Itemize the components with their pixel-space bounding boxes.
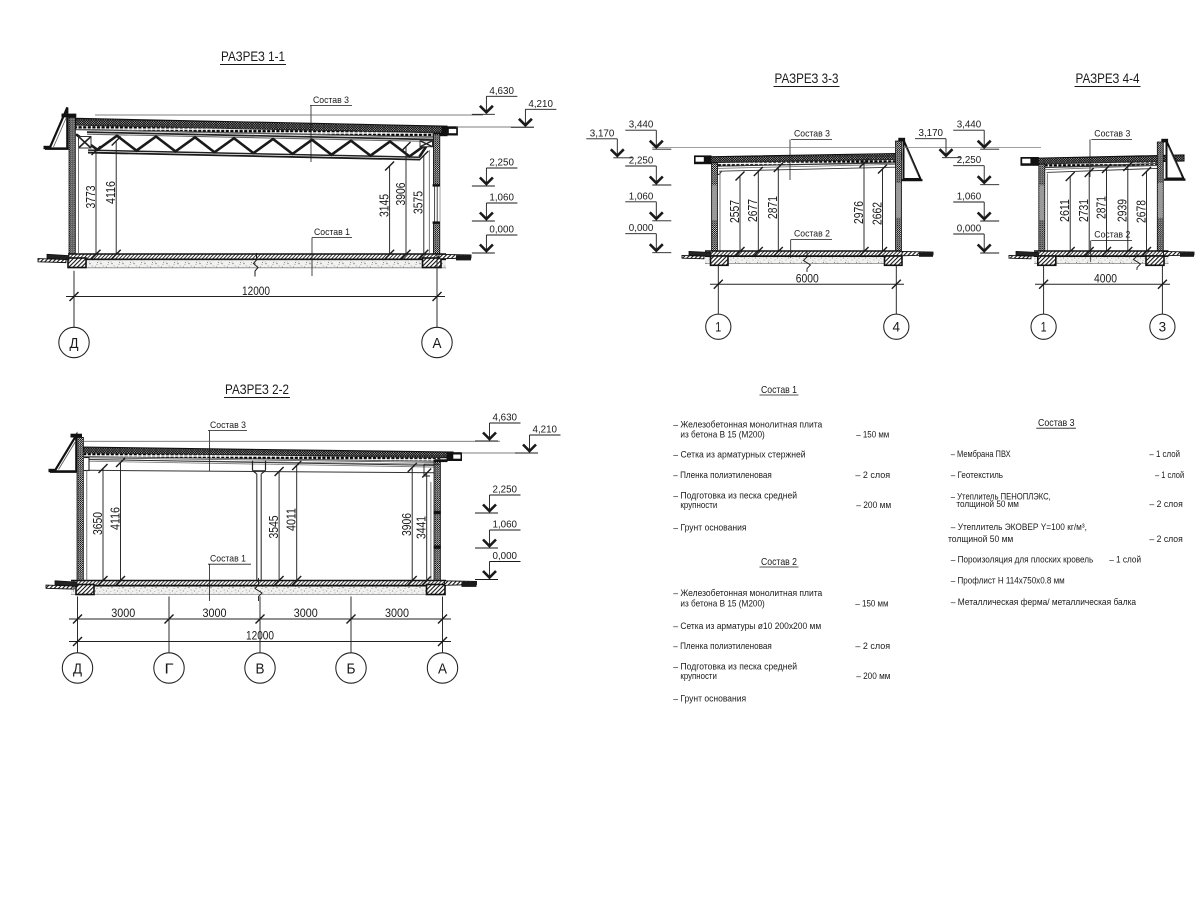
svg-text:3773: 3773 [84,185,98,208]
svg-text:Состав 2: Состав 2 [761,556,797,568]
svg-text:3000: 3000 [294,606,318,620]
svg-text:3,170: 3,170 [590,128,615,139]
svg-text:РАЗРЕЗ 1-1: РАЗРЕЗ 1-1 [221,48,285,64]
svg-text:– Сетка из арматуры ø10 200х20: – Сетка из арматуры ø10 200х200 мм [673,621,821,631]
svg-text:12000: 12000 [242,284,270,298]
svg-text:4,630: 4,630 [493,413,518,424]
svg-text:2,250: 2,250 [493,485,518,496]
svg-text:1: 1 [1041,319,1047,335]
svg-text:из бетона В 15 (М200): из бетона В 15 (М200) [680,598,764,608]
svg-text:– 200 мм: – 200 мм [856,671,890,681]
svg-text:Г: Г [165,660,174,677]
svg-text:Состав 1: Состав 1 [210,554,246,565]
svg-text:4011: 4011 [285,508,299,531]
svg-text:– Грунт основания: – Грунт основания [673,523,746,533]
svg-text:толщиной 50 мм: толщиной 50 мм [948,534,1013,544]
svg-text:из бетона В 15 (М200): из бетона В 15 (М200) [680,429,764,439]
svg-text:3000: 3000 [111,606,135,620]
svg-text:12000: 12000 [246,628,274,642]
svg-text:Состав 3: Состав 3 [1038,417,1075,429]
svg-text:– 2 слоя: – 2 слоя [1149,499,1183,509]
svg-text:– Утеплитель ЭКОВЕР Y=100 кг/м: – Утеплитель ЭКОВЕР Y=100 кг/м³, [951,522,1087,532]
svg-text:3545: 3545 [267,515,281,538]
svg-text:4000: 4000 [1094,271,1117,285]
svg-text:– 1 слой: – 1 слой [1149,449,1180,459]
svg-text:– Профлист Н 114х750х0.8 мм: – Профлист Н 114х750х0.8 мм [951,575,1065,585]
svg-text:2557: 2557 [728,200,742,223]
svg-text:Состав 1: Состав 1 [314,227,350,238]
svg-text:– Пленка полиэтиленовая: – Пленка полиэтиленовая [673,641,772,651]
svg-text:– Геотекстиль: – Геотекстиль [951,470,1003,480]
svg-text:Состав 2: Состав 2 [1094,230,1130,241]
svg-text:Состав 3: Состав 3 [210,420,246,431]
svg-text:– Сетка из арматурных стержней: – Сетка из арматурных стержней [673,450,805,460]
svg-text:А: А [433,335,442,352]
svg-text:2,250: 2,250 [957,155,982,166]
svg-text:2611: 2611 [1058,199,1072,222]
svg-text:3906: 3906 [400,513,414,536]
svg-text:– 1 слой: – 1 слой [1155,470,1184,480]
svg-text:1,060: 1,060 [489,193,514,204]
svg-text:РАЗРЕЗ 3-3: РАЗРЕЗ 3-3 [775,70,839,86]
svg-text:Состав 3: Состав 3 [1094,129,1130,140]
svg-text:толщиной 50 мм: толщиной 50 мм [956,499,1019,509]
svg-text:– 200 мм: – 200 мм [856,500,891,510]
svg-text:3,440: 3,440 [957,120,982,131]
svg-text:Состав 2: Состав 2 [794,229,830,240]
svg-text:– Железобетонная монолитная п: – Железобетонная монолитная плита [673,588,822,598]
svg-text:2871: 2871 [766,196,780,219]
svg-text:– 150 мм: – 150 мм [856,429,889,439]
svg-text:2939: 2939 [1116,199,1130,222]
svg-text:Состав 3: Состав 3 [794,129,830,140]
svg-text:Б: Б [347,660,356,677]
svg-text:0,000: 0,000 [629,223,654,234]
svg-text:– 1 слой: – 1 слой [1109,555,1141,565]
svg-text:– Пороизоляция для плоских кро: – Пороизоляция для плоских кровель [951,555,1094,565]
svg-text:4,210: 4,210 [533,425,558,436]
svg-text:2,250: 2,250 [629,156,654,167]
svg-text:А: А [438,660,447,677]
svg-text:– 2 слоя: – 2 слоя [1149,534,1183,544]
svg-text:– Мембрана ПВХ: – Мембрана ПВХ [951,449,1011,459]
svg-text:– 2 слоя: – 2 слоя [855,470,890,480]
svg-text:2871: 2871 [1094,196,1108,219]
svg-text:3145: 3145 [377,194,391,217]
svg-text:4: 4 [893,319,901,335]
svg-text:РАЗРЕЗ 4-4: РАЗРЕЗ 4-4 [1076,70,1140,86]
svg-text:6000: 6000 [796,271,819,285]
svg-text:3000: 3000 [385,606,409,620]
svg-text:В: В [256,660,265,677]
svg-text:1,060: 1,060 [629,191,654,202]
svg-text:2731: 2731 [1077,199,1091,222]
svg-text:– Грунт основания: – Грунт основания [673,694,746,704]
svg-text:0,000: 0,000 [489,225,514,236]
svg-text:– Подготовка из песка средней: – Подготовка из песка средней [673,491,797,501]
svg-text:4,210: 4,210 [528,99,553,110]
svg-text:3441: 3441 [415,516,429,539]
svg-text:3: 3 [1159,319,1167,335]
svg-text:Д: Д [73,660,82,677]
svg-text:4116: 4116 [104,181,118,204]
svg-text:3,170: 3,170 [919,128,944,139]
svg-text:3906: 3906 [394,182,408,205]
svg-text:3000: 3000 [203,606,227,620]
svg-text:0,000: 0,000 [493,551,518,562]
svg-text:2,250: 2,250 [489,158,514,169]
svg-text:– 150 мм: – 150 мм [855,598,888,608]
svg-text:2662: 2662 [870,202,884,225]
svg-text:– Пленка полиэтиленовая: – Пленка полиэтиленовая [673,470,772,480]
svg-text:2678: 2678 [1134,200,1148,223]
svg-text:Состав 1: Состав 1 [761,384,797,396]
svg-text:крупности: крупности [680,671,717,681]
svg-text:2976: 2976 [852,201,866,224]
svg-text:4,630: 4,630 [489,86,514,97]
svg-text:– Подготовка из песка средней: – Подготовка из песка средней [673,661,797,671]
svg-text:Состав 3: Состав 3 [313,95,349,106]
svg-text:4116: 4116 [108,507,122,530]
svg-text:3650: 3650 [91,512,105,535]
svg-text:2677: 2677 [746,199,760,222]
svg-text:Д: Д [70,335,79,352]
svg-text:– Металлическая ферма/ металли: – Металлическая ферма/ металлическая бал… [951,597,1136,607]
svg-text:1,060: 1,060 [493,520,518,531]
svg-text:1: 1 [715,319,721,335]
svg-text:3,440: 3,440 [629,120,654,131]
svg-text:0,000: 0,000 [957,224,982,235]
svg-text:РАЗРЕЗ 2-2: РАЗРЕЗ 2-2 [225,381,289,397]
svg-text:– 2 слоя: – 2 слоя [855,641,890,651]
svg-text:– Железобетонная монолитная п: – Железобетонная монолитная плита [673,419,822,429]
svg-text:крупности: крупности [680,500,717,510]
svg-text:1,060: 1,060 [957,192,982,203]
svg-text:3575: 3575 [412,191,426,214]
